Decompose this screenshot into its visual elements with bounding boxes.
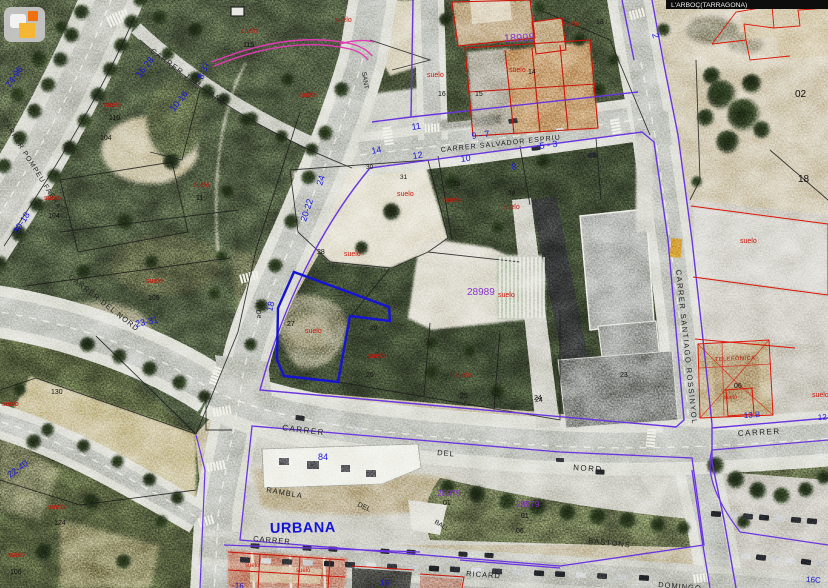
svg-text:suelo: suelo bbox=[563, 21, 580, 28]
svg-text:104: 104 bbox=[48, 213, 60, 220]
svg-text:11: 11 bbox=[196, 195, 203, 202]
svg-text:suelo: suelo bbox=[48, 504, 65, 511]
svg-text:29: 29 bbox=[370, 325, 378, 332]
svg-text:suelo: suelo bbox=[146, 278, 163, 285]
svg-text:suelo: suelo bbox=[740, 238, 757, 245]
svg-text:16C: 16C bbox=[806, 575, 821, 585]
svg-text:suelo: suelo bbox=[498, 292, 515, 299]
svg-text:39: 39 bbox=[508, 190, 516, 197]
svg-text:15: 15 bbox=[475, 91, 483, 98]
svg-text:12: 12 bbox=[412, 150, 423, 161]
svg-text:suelo: suelo bbox=[344, 251, 361, 258]
svg-text:13.B: 13.B bbox=[744, 410, 761, 420]
svg-text:suelo: suelo bbox=[503, 204, 520, 211]
svg-text:suelo: suelo bbox=[812, 392, 828, 399]
svg-text:DEL: DEL bbox=[437, 448, 455, 458]
svg-text:115: 115 bbox=[243, 42, 254, 49]
svg-text:URBANA: URBANA bbox=[270, 520, 336, 537]
svg-text:suelo: suelo bbox=[193, 182, 210, 189]
svg-text:28979: 28979 bbox=[516, 499, 540, 509]
svg-text:02: 02 bbox=[795, 89, 807, 100]
svg-text:suelo: suelo bbox=[241, 28, 258, 35]
svg-text:suelo: suelo bbox=[300, 92, 317, 99]
svg-text:110: 110 bbox=[109, 115, 120, 122]
svg-text:06: 06 bbox=[734, 383, 742, 390]
svg-text:suelo: suelo bbox=[104, 102, 121, 109]
svg-text:suelo: suelo bbox=[724, 395, 737, 401]
svg-text:suelo: suelo bbox=[44, 195, 61, 202]
svg-text:suelo: suelo bbox=[444, 197, 461, 204]
svg-text:109: 109 bbox=[148, 295, 160, 302]
svg-text:suelo: suelo bbox=[335, 17, 352, 24]
svg-text:24: 24 bbox=[535, 397, 543, 404]
svg-text:01: 01 bbox=[521, 513, 529, 520]
svg-text:106: 106 bbox=[10, 569, 22, 576]
svg-text:13: 13 bbox=[596, 19, 604, 26]
svg-text:suelo: suelo bbox=[305, 328, 322, 335]
svg-text:104: 104 bbox=[100, 135, 112, 142]
svg-text:suelo: suelo bbox=[368, 353, 385, 360]
svg-text:11: 11 bbox=[411, 121, 422, 132]
svg-text:10: 10 bbox=[460, 153, 471, 164]
svg-text:28: 28 bbox=[317, 249, 325, 256]
svg-text:18: 18 bbox=[798, 174, 810, 185]
svg-text:130: 130 bbox=[51, 389, 63, 396]
svg-text:suelo: suelo bbox=[8, 552, 25, 559]
svg-text:suelo: suelo bbox=[427, 72, 444, 79]
svg-text:31: 31 bbox=[400, 174, 408, 181]
svg-text:16: 16 bbox=[380, 578, 390, 588]
svg-text:23: 23 bbox=[620, 372, 628, 379]
svg-text:124: 124 bbox=[54, 520, 66, 527]
svg-text:14: 14 bbox=[371, 144, 383, 156]
svg-text:suelo: suelo bbox=[397, 191, 414, 198]
svg-text:-16: -16 bbox=[232, 581, 245, 588]
svg-text:suelo: suelo bbox=[509, 67, 526, 74]
svg-text:suelo: suelo bbox=[455, 372, 472, 379]
svg-text:30: 30 bbox=[366, 164, 374, 171]
svg-text:01: 01 bbox=[443, 500, 451, 507]
svg-text:28979: 28979 bbox=[437, 488, 461, 498]
svg-text:84: 84 bbox=[318, 452, 328, 462]
svg-text:26': 26' bbox=[366, 372, 375, 379]
svg-text:suelo: suelo bbox=[296, 568, 311, 574]
svg-text:suelo: suelo bbox=[245, 563, 260, 569]
svg-text:suelo: suelo bbox=[2, 401, 19, 408]
svg-text:06: 06 bbox=[516, 528, 524, 535]
svg-text:28989: 28989 bbox=[467, 287, 495, 298]
svg-text:18998: 18998 bbox=[504, 32, 535, 45]
svg-text:L'ARBOÇ(TARRAGONA): L'ARBOÇ(TARRAGONA) bbox=[671, 2, 747, 9]
svg-text:12: 12 bbox=[818, 412, 828, 422]
svg-text:27: 27 bbox=[287, 321, 295, 328]
svg-text:16: 16 bbox=[438, 91, 446, 98]
svg-text:14: 14 bbox=[528, 69, 536, 76]
svg-text:25: 25 bbox=[460, 393, 468, 400]
svg-text:33: 33 bbox=[453, 181, 461, 188]
